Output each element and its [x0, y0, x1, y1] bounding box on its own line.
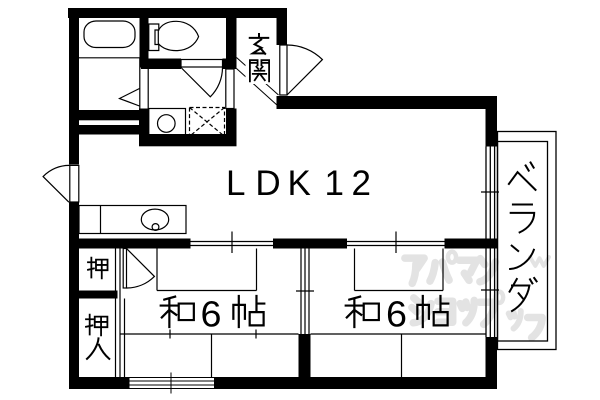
svg-text:D: D [255, 164, 280, 203]
svg-text:1: 1 [325, 164, 344, 203]
svg-text:2: 2 [352, 164, 371, 203]
svg-text:6: 6 [201, 294, 222, 335]
svg-text:L: L [226, 164, 245, 203]
svg-text:K: K [288, 164, 311, 203]
svg-text:6: 6 [386, 294, 407, 335]
